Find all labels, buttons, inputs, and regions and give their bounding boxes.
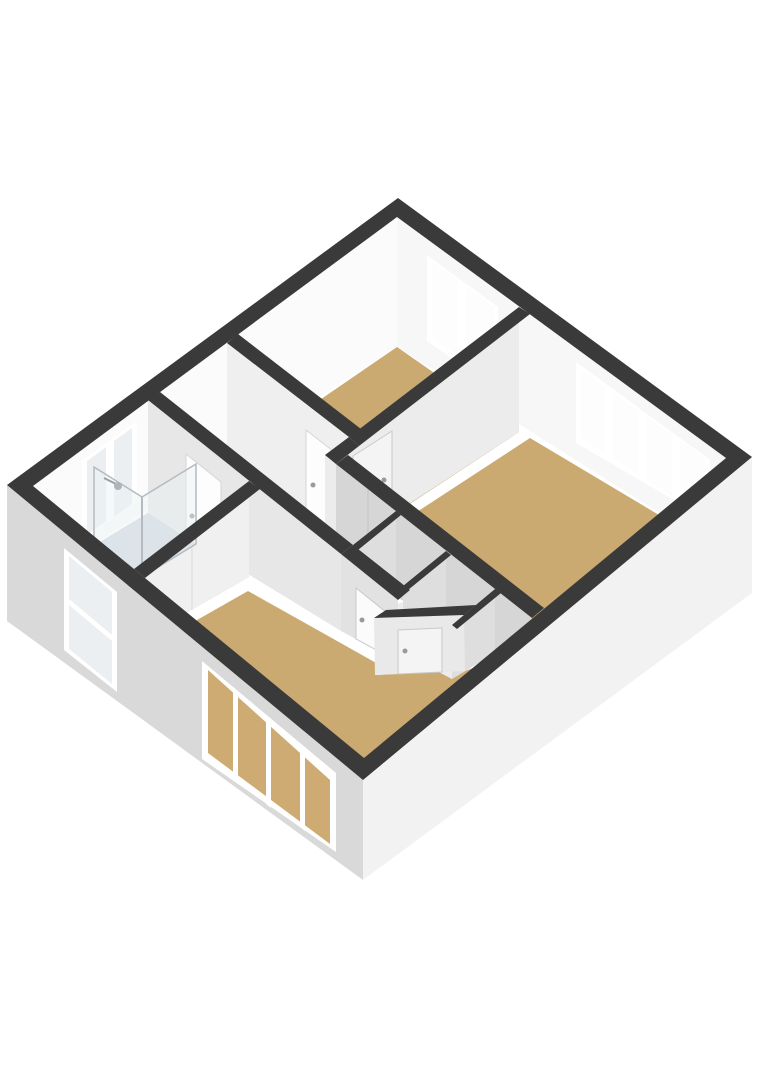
door-handle <box>403 649 408 654</box>
window-mullion <box>233 687 238 784</box>
floorplan-3d-render <box>0 0 764 1080</box>
window-mullion <box>266 715 271 808</box>
shower-head-icon <box>114 482 122 490</box>
floorplan-svg <box>0 0 764 1080</box>
window-mullion <box>300 743 305 831</box>
door-handle <box>311 483 316 488</box>
door-handle <box>360 618 365 623</box>
